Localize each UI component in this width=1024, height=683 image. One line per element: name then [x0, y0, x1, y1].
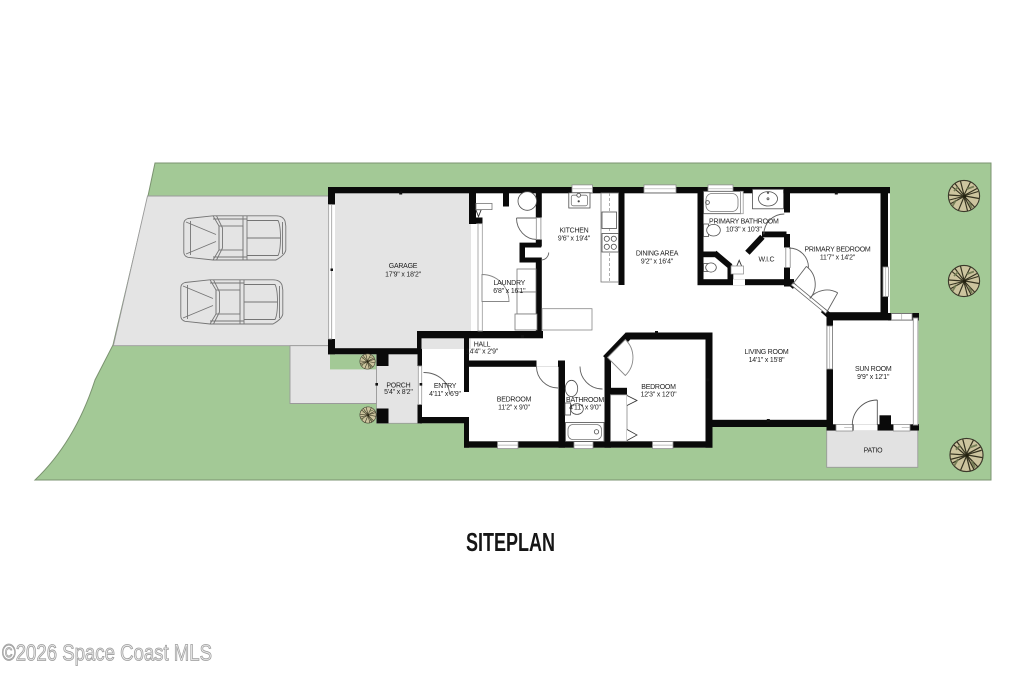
svg-text:11'7" x 14'2": 11'7" x 14'2" [820, 254, 856, 261]
svg-text:PRIMARY BEDROOM: PRIMARY BEDROOM [804, 246, 870, 253]
svg-text:HALL: HALL [474, 342, 491, 349]
svg-text:DINING AREA: DINING AREA [636, 251, 679, 258]
svg-text:W.I.C: W.I.C [758, 257, 774, 264]
svg-text:KITCHEN: KITCHEN [560, 228, 589, 235]
svg-text:4'11" x 6'9": 4'11" x 6'9" [429, 391, 461, 398]
svg-text:17'9" x 18'2": 17'9" x 18'2" [385, 272, 422, 279]
svg-text:9'6" x 19'4": 9'6" x 19'4" [558, 236, 591, 243]
svg-text:BATHROOM: BATHROOM [566, 397, 604, 404]
svg-text:PATIO: PATIO [864, 448, 884, 455]
svg-text:9'2" x 16'4": 9'2" x 16'4" [641, 259, 674, 266]
svg-text:4'11" x 9'0": 4'11" x 9'0" [569, 404, 601, 411]
svg-text:PRIMARY BATHROOM: PRIMARY BATHROOM [709, 219, 779, 226]
svg-text:LAUNDRY: LAUNDRY [494, 280, 526, 287]
svg-text:BEDROOM: BEDROOM [641, 384, 676, 391]
svg-text:LIVING ROOM: LIVING ROOM [745, 349, 789, 356]
svg-text:9'9" x 12'1": 9'9" x 12'1" [857, 374, 890, 381]
svg-text:12'3" x 12'0": 12'3" x 12'0" [641, 392, 678, 399]
svg-text:©2026 Space Coast MLS: ©2026 Space Coast MLS [2, 640, 212, 666]
svg-text:SUN ROOM: SUN ROOM [855, 366, 892, 373]
svg-text:6'8" x 16'1": 6'8" x 16'1" [493, 288, 526, 295]
svg-text:BEDROOM: BEDROOM [497, 397, 532, 404]
svg-text:10'3" x 10'3": 10'3" x 10'3" [726, 227, 763, 234]
svg-text:14'4" x 2'9": 14'4" x 2'9" [466, 349, 499, 356]
svg-text:SITEPLAN: SITEPLAN [466, 527, 555, 557]
svg-text:GARAGE: GARAGE [389, 263, 418, 270]
svg-text:5'4" x 8'2": 5'4" x 8'2" [384, 389, 413, 396]
svg-text:ENTRY: ENTRY [434, 383, 457, 390]
svg-text:14'1" x 15'8": 14'1" x 15'8" [749, 357, 786, 364]
svg-text:11'2" x 9'0": 11'2" x 9'0" [498, 405, 530, 412]
